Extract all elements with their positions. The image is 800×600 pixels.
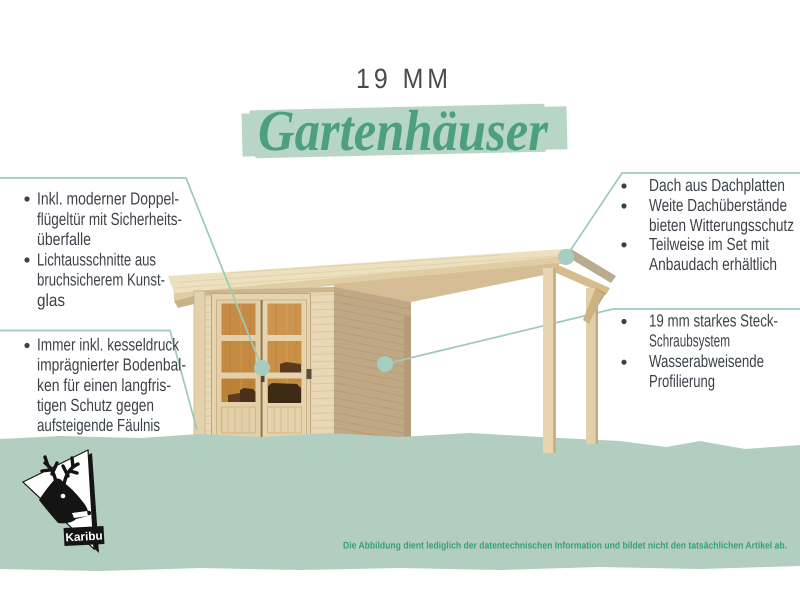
svg-text:glas: glas [37, 290, 65, 310]
svg-text:flügeltür mit Sicherheits-: flügeltür mit Sicherheits- [37, 209, 182, 229]
svg-text:Teilweise im Set mit: Teilweise im Set mit [649, 234, 769, 254]
svg-text:imprägnierter Bodenbal-: imprägnierter Bodenbal- [37, 355, 186, 375]
svg-text:Die Abbildung dient lediglich: Die Abbildung dient lediglich der datent… [343, 541, 787, 552]
svg-text:Immer inkl. kesseldruck: Immer inkl. kesseldruck [37, 335, 179, 355]
svg-text:bieten Witterungsschutz: bieten Witterungsschutz [649, 215, 794, 235]
svg-text:Karibu: Karibu [65, 529, 103, 545]
svg-text:Wasserabweisende: Wasserabweisende [649, 351, 764, 371]
svg-text:überfalle: überfalle [37, 229, 91, 249]
svg-text:Profilierung: Profilierung [649, 371, 715, 391]
svg-text:Schraubsystem: Schraubsystem [649, 331, 730, 351]
svg-text:Inkl. moderner Doppel-: Inkl. moderner Doppel- [37, 189, 179, 209]
svg-text:19 MM: 19 MM [356, 63, 452, 94]
svg-text:Lichtausschnitte aus: Lichtausschnitte aus [37, 249, 156, 269]
svg-text:Weite Dachüberstände: Weite Dachüberstände [649, 195, 787, 215]
svg-text:aufsteigende Fäulnis: aufsteigende Fäulnis [37, 415, 160, 435]
svg-text:Gartenhäuser: Gartenhäuser [258, 98, 548, 163]
svg-text:Anbaudach erhältlich: Anbaudach erhältlich [649, 254, 777, 274]
svg-text:bruchsicherem Kunst-: bruchsicherem Kunst- [37, 270, 165, 290]
svg-text:Dach aus Dachplatten: Dach aus Dachplatten [649, 175, 785, 195]
svg-text:tigen Schutz gegen: tigen Schutz gegen [37, 395, 154, 415]
svg-text:ken für einen langfris-: ken für einen langfris- [37, 375, 171, 395]
svg-text:19 mm starkes Steck-: 19 mm starkes Steck- [649, 311, 778, 331]
